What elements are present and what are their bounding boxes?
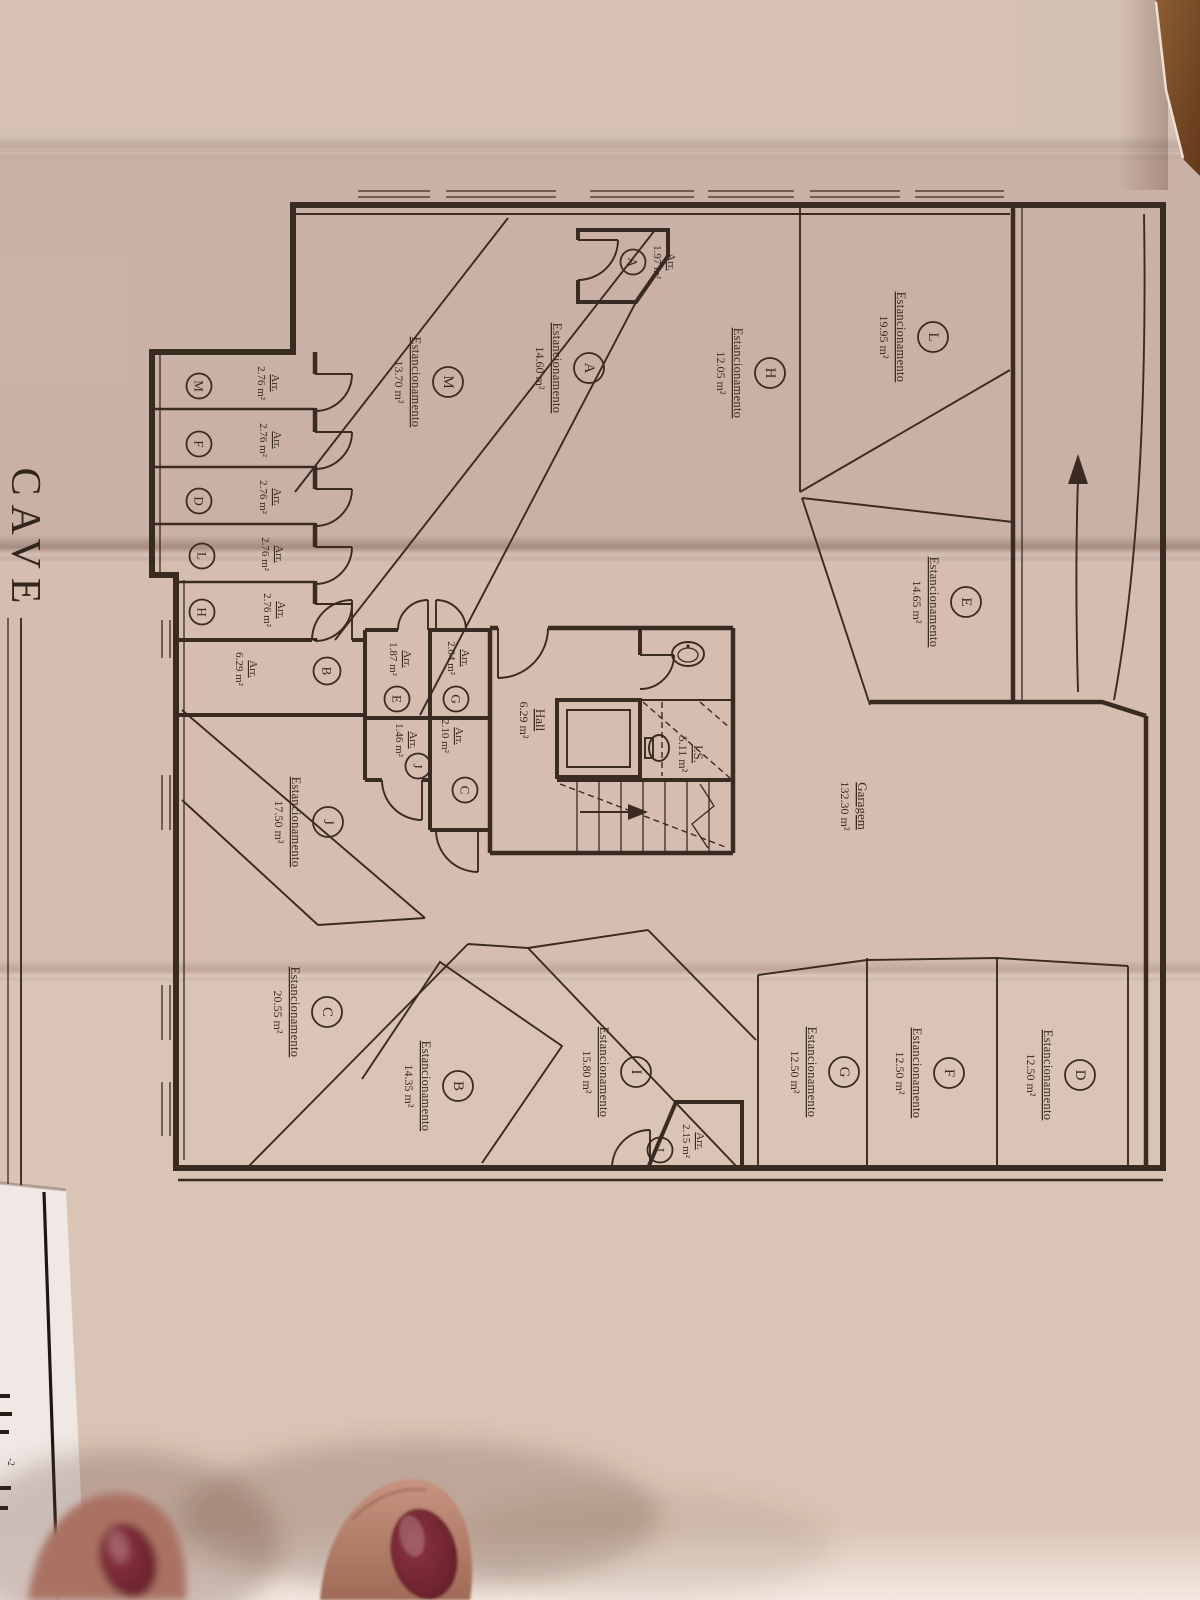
- svg-text:Estancionamento: Estancionamento: [805, 1027, 819, 1118]
- svg-text:5.11 m²: 5.11 m²: [676, 736, 690, 773]
- svg-text:I: I: [653, 1148, 668, 1152]
- svg-text:Garagem: Garagem: [855, 782, 870, 830]
- svg-text:2.76 m²: 2.76 m²: [257, 423, 269, 458]
- svg-text:Estancionamento: Estancionamento: [1041, 1030, 1055, 1121]
- svg-text:I: I: [628, 1070, 644, 1075]
- svg-text:J: J: [320, 819, 336, 825]
- svg-text:Arr.: Arr.: [271, 431, 283, 449]
- svg-text:132.30 m²: 132.30 m²: [838, 782, 852, 831]
- svg-text:13.70 m²: 13.70 m²: [392, 361, 406, 404]
- svg-text:-2: -2: [6, 1458, 16, 1466]
- svg-text:Arr.: Arr.: [459, 649, 471, 667]
- svg-text:Estancionamento: Estancionamento: [288, 967, 302, 1058]
- svg-text:H: H: [762, 368, 778, 379]
- fold-crease-1: [0, 536, 1200, 562]
- svg-text:D: D: [1072, 1070, 1088, 1081]
- svg-text:CAVE: CAVE: [2, 468, 48, 613]
- svg-text:Arr.: Arr.: [401, 650, 413, 668]
- svg-text:Estancionamento: Estancionamento: [409, 337, 423, 428]
- svg-text:2.76 m²: 2.76 m²: [261, 593, 273, 628]
- svg-text:B: B: [320, 667, 335, 676]
- svg-text:Estancionamento: Estancionamento: [550, 323, 564, 414]
- svg-text:Arr.: Arr.: [275, 601, 287, 619]
- svg-text:19.95 m²: 19.95 m²: [877, 316, 891, 359]
- svg-text:C: C: [319, 1007, 335, 1017]
- svg-text:G: G: [836, 1067, 852, 1078]
- svg-text:2.04 m²: 2.04 m²: [445, 641, 457, 676]
- plan-svg: L Estancionamento 19.95 m² A Estancionam…: [0, 0, 1200, 1600]
- svg-text:1.87 m²: 1.87 m²: [387, 642, 399, 677]
- svg-text:E: E: [958, 597, 974, 606]
- svg-text:Arr.: Arr.: [269, 374, 281, 392]
- svg-text:I.S.: I.S.: [691, 745, 706, 763]
- svg-text:14.60 m²: 14.60 m²: [533, 347, 547, 390]
- svg-text:Hall: Hall: [533, 709, 548, 732]
- svg-text:Estancionamento: Estancionamento: [731, 328, 745, 419]
- svg-text:1.46 m²: 1.46 m²: [393, 723, 405, 758]
- floorplan-photo: L Estancionamento 19.95 m² A Estancionam…: [0, 0, 1200, 1600]
- svg-text:2.76 m²: 2.76 m²: [255, 366, 267, 401]
- svg-text:L: L: [195, 552, 210, 560]
- svg-text:Arr.: Arr.: [694, 1132, 706, 1150]
- svg-text:2.15 m²: 2.15 m²: [680, 1124, 692, 1159]
- svg-text:J: J: [411, 763, 426, 768]
- svg-text:L: L: [925, 332, 941, 341]
- paper-top-band: [0, 0, 1200, 150]
- svg-text:H: H: [195, 607, 210, 616]
- svg-text:Estancionamento: Estancionamento: [289, 777, 303, 868]
- svg-text:Arr.: Arr.: [273, 545, 285, 563]
- sheet-title: CAVE: [2, 468, 48, 613]
- svg-text:14.65 m²: 14.65 m²: [910, 581, 924, 624]
- svg-text:17.50 m²: 17.50 m²: [272, 801, 286, 844]
- svg-text:20.55 m²: 20.55 m²: [271, 991, 285, 1034]
- svg-text:Estancionamento: Estancionamento: [927, 557, 941, 648]
- svg-text:Arr.: Arr.: [407, 731, 419, 749]
- svg-text:F: F: [192, 440, 207, 447]
- svg-text:E: E: [390, 695, 405, 703]
- svg-text:Arr.: Arr.: [271, 488, 283, 506]
- svg-text:15.80 m²: 15.80 m²: [580, 1051, 594, 1094]
- svg-text:Arr.: Arr.: [665, 253, 677, 271]
- svg-text:A: A: [581, 363, 597, 374]
- fold-crease-top: [0, 136, 1200, 160]
- svg-text:A: A: [626, 257, 641, 267]
- svg-text:14.35 m²: 14.35 m²: [402, 1065, 416, 1108]
- svg-text:6.29 m²: 6.29 m²: [517, 702, 531, 739]
- svg-text:C: C: [458, 786, 473, 795]
- svg-text:12.50 m²: 12.50 m²: [1024, 1054, 1038, 1097]
- svg-text:Estancionamento: Estancionamento: [894, 292, 908, 383]
- svg-text:F: F: [941, 1069, 957, 1077]
- svg-text:12.50 m²: 12.50 m²: [893, 1052, 907, 1095]
- svg-text:2.10 m²: 2.10 m²: [439, 719, 451, 754]
- svg-text:2.76 m²: 2.76 m²: [259, 537, 271, 572]
- svg-text:Arr.: Arr.: [247, 660, 259, 678]
- fold-crease-2: [0, 960, 1200, 982]
- svg-text:G: G: [449, 694, 464, 703]
- under-sheet-note: -2: [6, 1458, 16, 1466]
- svg-text:D: D: [192, 496, 207, 505]
- svg-text:12.50 m²: 12.50 m²: [788, 1051, 802, 1094]
- svg-text:12.05 m²: 12.05 m²: [714, 352, 728, 395]
- svg-text:M: M: [440, 375, 456, 388]
- svg-text:Estancionamento: Estancionamento: [597, 1027, 611, 1118]
- svg-text:M: M: [192, 380, 207, 392]
- svg-text:B: B: [450, 1081, 466, 1091]
- svg-text:2.76 m²: 2.76 m²: [257, 480, 269, 515]
- svg-text:Arr.: Arr.: [453, 727, 465, 745]
- svg-text:1.97 m²: 1.97 m²: [651, 245, 663, 280]
- svg-text:Estancionamento: Estancionamento: [419, 1041, 433, 1132]
- svg-text:Estancionamento: Estancionamento: [910, 1028, 924, 1119]
- svg-text:6.29 m²: 6.29 m²: [233, 652, 245, 687]
